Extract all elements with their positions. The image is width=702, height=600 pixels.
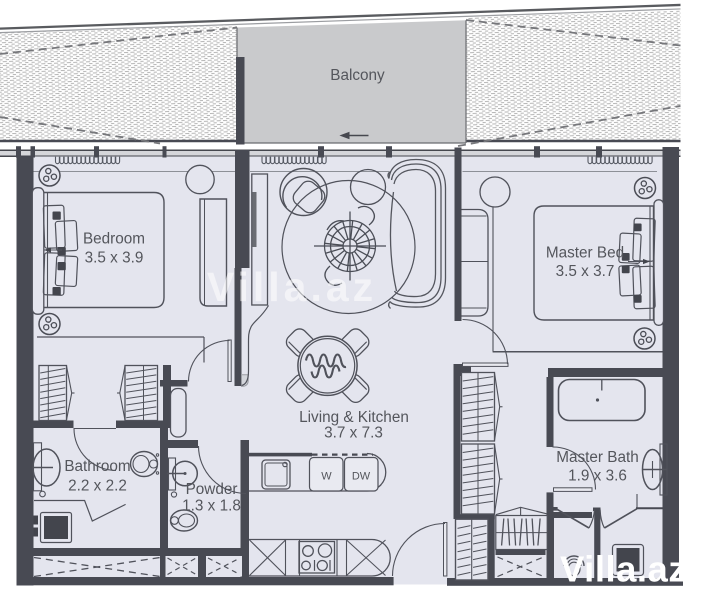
svg-text:Villa.az: Villa.az [560, 549, 687, 590]
svg-text:Powder: Powder [186, 481, 238, 498]
svg-text:Master Bath: Master Bath [556, 449, 638, 466]
svg-text:Bedroom: Bedroom [83, 231, 145, 248]
svg-text:3.7 x 7.3: 3.7 x 7.3 [324, 425, 383, 442]
svg-text:W: W [321, 471, 332, 483]
svg-text:1.9 x 3.6: 1.9 x 3.6 [568, 468, 627, 485]
svg-text:1.3 x 1.8: 1.3 x 1.8 [182, 498, 241, 515]
svg-text:3.5 x 3.7: 3.5 x 3.7 [556, 263, 615, 280]
svg-text:3.5 x 3.9: 3.5 x 3.9 [85, 250, 144, 267]
svg-text:2.2 x 2.2: 2.2 x 2.2 [68, 478, 127, 495]
svg-text:DW: DW [352, 471, 371, 483]
svg-text:Balcony: Balcony [330, 67, 385, 84]
svg-text:Bathroom: Bathroom [64, 458, 130, 475]
svg-text:Master Bed: Master Bed [546, 245, 624, 262]
svg-text:Villa.az: Villa.az [207, 264, 377, 310]
svg-text:Living & Kitchen: Living & Kitchen [299, 409, 409, 426]
